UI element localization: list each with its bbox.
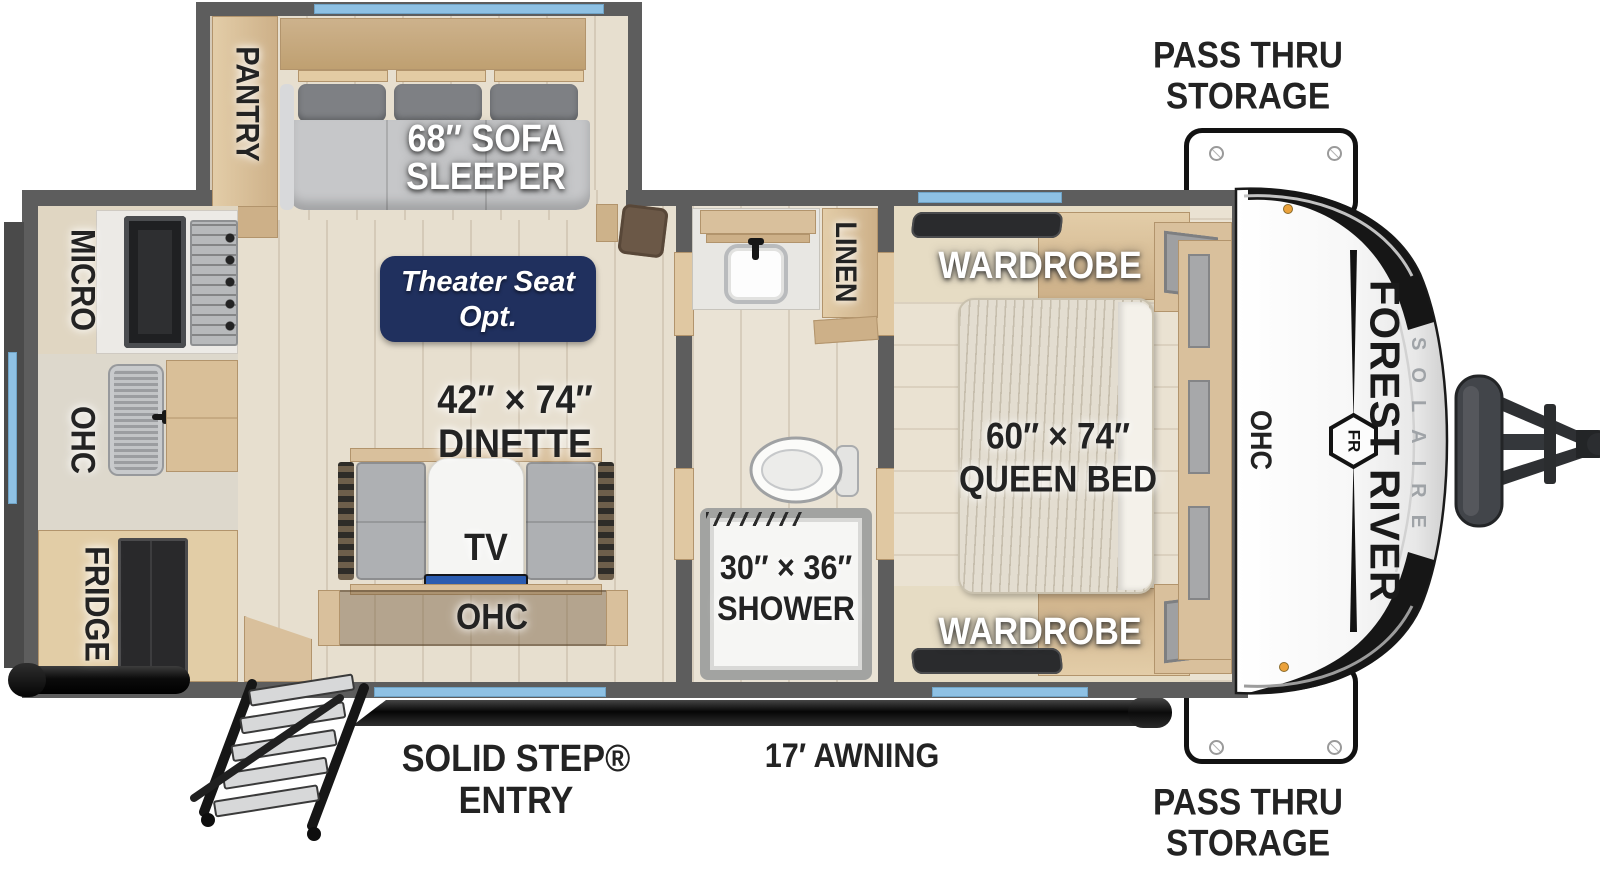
fridge-label: FRIDGE: [77, 546, 116, 662]
solid-step-entry-label-line2: ENTRY: [459, 782, 574, 822]
pass-thru-bottom-label-line2: STORAGE: [1166, 825, 1330, 864]
kitchen-ohc-label: OHC: [63, 406, 102, 474]
brand-model: SOLAIRE: [1407, 337, 1429, 545]
queen-bed-label-line2: QUEEN BED: [959, 461, 1157, 500]
theater-seat-option-line1: Theater Seat: [380, 266, 596, 299]
toilet: [751, 438, 858, 502]
pass-thru-bottom-label-line1: PASS THRU: [1153, 784, 1343, 823]
dinette-ohc-label: OHC: [456, 598, 528, 636]
forest-river-logo-monogram: FR: [1345, 430, 1364, 453]
tv-label: TV: [464, 529, 508, 569]
entry-steps: [194, 675, 370, 841]
floorplan-canvas: FR FOREST RIVER SOLAIRE: [0, 0, 1600, 881]
wardrobe-top-label: WARDROBE: [938, 247, 1141, 287]
hitch-post: [1544, 404, 1556, 484]
clearance-light-icon: [1280, 663, 1289, 672]
step-foot: [201, 813, 215, 827]
queen-bed-label-line1: 60″ × 74″: [986, 418, 1130, 457]
brand-name: FOREST RIVER: [1362, 280, 1409, 602]
pass-thru-top-label-line1: PASS THRU: [1153, 37, 1343, 76]
dinette-label-line1: 42″ × 74″: [437, 379, 593, 421]
shower-label-line1: 30″ × 36″: [720, 551, 852, 587]
clearance-light-icon: [1284, 205, 1293, 214]
linen-label: LINEN: [828, 222, 862, 303]
pantry-label: PANTRY: [229, 46, 266, 161]
wardrobe-bottom-label: WARDROBE: [938, 613, 1141, 653]
tongue-jack-highlight: [1463, 386, 1479, 516]
sofa-label-line1: 68″ SOFA: [407, 120, 564, 160]
micro-label: MICRO: [63, 229, 102, 331]
step-foot: [307, 827, 321, 841]
awning-label: 17′ AWNING: [765, 739, 940, 775]
solid-step-entry-label-line1: SOLID STEP®: [402, 740, 631, 780]
theater-seat-option-badge: Theater Seat Opt.: [380, 256, 596, 342]
theater-seat-option-line2: Opt.: [380, 301, 596, 334]
bedroom-ohc-label: OHC: [1243, 410, 1277, 470]
pass-thru-top-label-line2: STORAGE: [1166, 78, 1330, 117]
hitch-assembly: [1456, 376, 1600, 526]
dinette-label-line2: DINETTE: [438, 423, 592, 465]
sofa-label-line2: SLEEPER: [406, 158, 566, 198]
shower-label-line2: SHOWER: [717, 592, 855, 628]
